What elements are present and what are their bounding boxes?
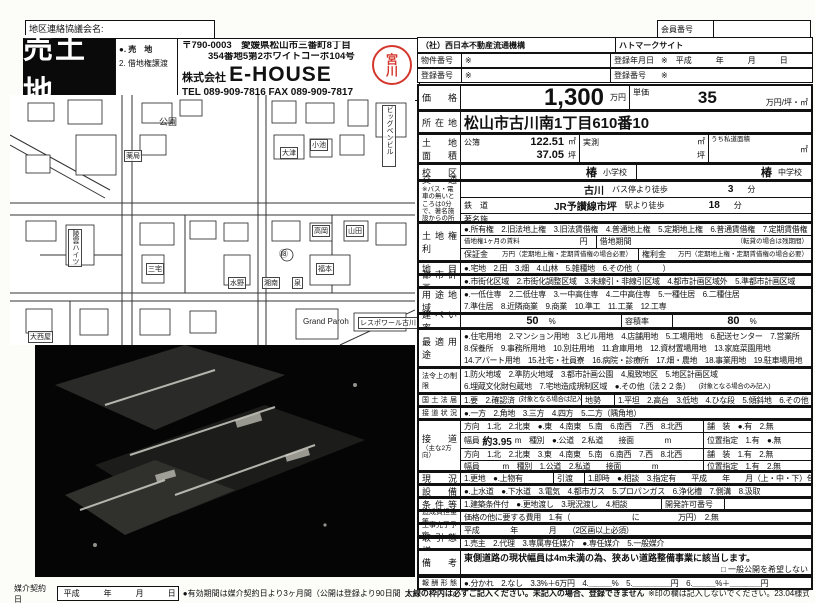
saiteki-lines: ●.住宅用地 2.マンション用地 3.ビル用地 4.店舗用地 5.工場用地 6.… [461, 330, 811, 366]
yoseki-value: 80 [727, 315, 739, 327]
footer-note-2: 太線の枠内は必ずご記入ください。未記入の場合、登録できません。 [405, 588, 644, 599]
map-label-onishiya: 大西屋 [28, 331, 53, 343]
location-map: 公園 薬局 大津 小池 高岡 山田 ビッグベンビル 三宅 福本 水野 湘南 泉 … [10, 95, 415, 345]
flyer-page: 地区連絡協議会名: 売土地 ●. 売 地 2. 借地権譲渡 〒790-0003 … [0, 0, 815, 603]
koji-value: 平成 年 月 （2区画以上必須） [461, 525, 811, 535]
kenpei-pct: % [549, 317, 556, 326]
area-jissoku-tsubo-unit: 坪 [697, 150, 705, 161]
bukken-row: 物件番号 ※ 登録年月日 ※ 平成 年 月 日 [417, 53, 813, 68]
transport-label: 交通 ※バス・電車の無いところは0分で、著名施設からの所要を記入 [419, 182, 461, 221]
org-left-title: （社）西日本不動産流通機構 [418, 38, 616, 52]
company-name-main: E-HOUSE [229, 63, 332, 86]
yoseki-cell: 80 % [672, 315, 811, 327]
map-label-koike: 小池 [310, 139, 328, 151]
chimoku-row: 地目 ●.宅地 2.田 3.畑 4.山林 5.雑種地 6.その他（ ） [417, 262, 813, 275]
genkyo-row: 現況 1.更地 ●.上物有 引渡 1.即時 ●.相談 3.指定有 平成 年 月（… [417, 472, 813, 485]
price-unit: 万円 [610, 92, 626, 103]
school-jhs-cell: 椿 中学校 [636, 165, 811, 179]
area-shidou-unit: ㎡ [709, 144, 811, 155]
yoto-options-1: ●.一低住専 2.二低住専 3.一中高住専 4.二中高住専 5.一種住居 6.二… [461, 289, 811, 301]
biko-lines: 東側道路の現状幅員は4m未満の為、狭あい道路整備事業に該当します。 □ 一般公開… [461, 551, 811, 574]
area-row: 土地面積 公簿 122.51㎡ 37.05坪 実測 ㎡ 坪 うち私道面積 ㎡ [417, 134, 813, 164]
org-title-row: （社）西日本不動産流通機構 ハトマークサイト [417, 37, 813, 53]
unit-price-unit: 万円/坪・㎡ [763, 96, 811, 109]
saiteki-options-3: 14.アパート用地 15.社宅・社員寮 16.病院・診療所 17.畑・農地 18… [461, 354, 811, 366]
torihiki-label: 取引態様 [419, 539, 461, 548]
bukken-value: ※ [462, 54, 610, 67]
map-label-fukumoto: 福本 [316, 263, 334, 275]
area-label: 土地面積 [419, 135, 461, 162]
touroku-date-label: 登録年月日 [610, 54, 658, 67]
kenpei-cell: 50 % [461, 315, 621, 327]
area-shidou-label: うち私道面積 [709, 135, 811, 144]
toshi-options: ●.市街化区域 2.市街化調整区域 3.未線引・非線引区域 4.都市計画区域外 … [461, 276, 811, 286]
yoseki-pct: % [750, 317, 757, 326]
photo-drawing [35, 345, 415, 577]
hikiwatashi-label: 引渡 [553, 473, 584, 483]
zosei-row: 造成負担金等 価格の他に要する費用 1.有（ に 万円） 2.無 [417, 511, 813, 524]
setsudo-r4-pos: 位置指定 1.有 2.無 [703, 461, 808, 472]
property-photo [35, 345, 415, 577]
chisei-label: 地勢 [581, 395, 614, 405]
biko-checkbox: □ 一般公開を希望しない [461, 564, 811, 575]
setsudo-jokyo-options: ●.一方 2.角地 3.三方 4.四方 5.二方（隅角地） [461, 408, 811, 418]
location-label: 所在地 [419, 112, 461, 132]
map-label-izumi: 泉 [292, 277, 303, 289]
kokudo-label: 国土法届 [419, 395, 461, 405]
land-rights-row: 土地権利 ●.所有権 2.旧法地上権 3.旧法賃借権 4.普通地上権 5.定期地… [417, 223, 813, 262]
org-right-title: ハトマークサイト [616, 38, 812, 52]
setsudo-label: 接 道 （主な2方向） [419, 421, 461, 470]
setsudo-r2-pos: 位置指定 1.有 ●.無 [703, 433, 808, 448]
company-name-prefix: 株式会社 [182, 72, 226, 84]
setsubi-options: ●.上水道 ●.下水道 3.電気 4.都市ガス 5.プロパンガス 6.浄化槽 7… [461, 486, 811, 496]
kenpei-value: 50 [526, 315, 538, 327]
bus-min-unit: 分 [747, 184, 755, 195]
biko-row: 備 考 東側道路の現状幅員は4m未満の為、狭あい道路整備事業に該当します。 □ … [417, 550, 813, 576]
footer-note-3: ※印の欄は記入しないでください。 [648, 588, 770, 599]
price-value-cell: 1,300 万円 [461, 86, 629, 109]
transport-row: 交通 ※バス・電車の無いところは0分で、著名施設からの所要を記入 古川 バス停よ… [417, 181, 813, 223]
area-koubo-m2: 122.51 [530, 136, 564, 148]
genkyo-options: 1.更地 ●.上物有 [461, 473, 553, 483]
kaihatsu-label: 開発許可番号 [661, 499, 724, 509]
school-jhs: 椿 [761, 164, 772, 180]
land-rights-label: 土地権利 [419, 224, 461, 260]
land-rights-deposit: 保証金 万円（定期地上権・定期賃借権の場合必要） 権利金 万円（定期地上権・定期… [461, 248, 811, 260]
setsudo-r2: 幅員 約3.95 m 種別 ●.公道 2.私道 接面 m 位置指定 1.有 ●.… [461, 432, 811, 448]
rail-minutes: 18 [709, 200, 720, 211]
bus-minutes: 3 [728, 184, 734, 195]
map-label-yamada: 山田 [346, 225, 364, 237]
map-label-mizuno: 水野 [228, 277, 246, 289]
rail-name: JR予讃線市坪 [554, 198, 617, 213]
kokudo-note: (対象となる場合は記入) [519, 396, 581, 403]
setsudo-r3-hoso: 舗 装 1.有 2.無 [703, 449, 808, 460]
zosei-options: 価格の他に要する費用 1.有（ に 万円） 2.無 [461, 512, 811, 522]
yoto-row: 用途地域 ●.一低住専 2.二低住専 3.一中高住専 4.二中高住専 5.一種住… [417, 288, 813, 314]
rail-label: 鉄 道 [464, 200, 494, 211]
property-register-card: 会員番号 （社）西日本不動産流通機構 ハトマークサイト 物件番号 ※ 登録年月日… [417, 20, 813, 592]
school-elem-cell: 椿 小学校 [461, 165, 636, 179]
unit-price-cell: 単価 35 万円/坪・㎡ [629, 86, 811, 109]
setsudo-r4: 幅員 m 種別 1.公道 2.私道 接面 m 位置指定 1.有 2.無 [461, 460, 811, 472]
map-label-otsu: 大津 [280, 147, 298, 159]
transport-lines: 古川 バス停より徒歩 3 分 鉄 道 JR予讃線市坪 駅より徒歩 18 分 著名… [461, 182, 811, 221]
genkyo-label: 現況 [419, 473, 461, 483]
map-label-shonan: 湘南 [262, 277, 280, 289]
touroku2-value: ※ [658, 69, 812, 82]
rent-label: 借地権1ヶ月の賃料 [464, 238, 520, 245]
setsudo-lines: 方向 1.北 2.北東 ●.東 4.南東 5.南 6.南西 7.西 8.北西 舗… [461, 421, 811, 470]
land-rights-lines: ●.所有権 2.旧法地上権 3.旧法賃借権 4.普通地上権 5.定期地上権 6.… [461, 224, 811, 260]
location-row: 所在地 松山市古川南1丁目610番10 [417, 111, 813, 134]
touroku-value: ※ [462, 69, 610, 82]
setsudo-r1-hoso: 舗 装 ●.有 2.無 [703, 421, 808, 432]
kokudo-row: 国土法届 1.要 2.確認済(対象となる場合は記入) 地勢 1.平坦 2.高台 … [417, 394, 813, 407]
deposit-label: 保証金 [464, 249, 488, 260]
biko-text: 東側道路の現状幅員は4m未満の為、狭あい道路整備事業に該当します。 [461, 551, 811, 564]
footer-note-1: ●有効期間は媒介契約日より3ヶ月間（公開は登録より90日間） [183, 588, 401, 599]
touroku-date-value: ※ 平成 年 月 日 [658, 54, 812, 67]
joken-row: 条件等 1.建築条件付 ●.更地渡し 3.現況渡し 4.相談 開発許可番号 [417, 498, 813, 511]
horei-row: 法令上の制限 1.防火地域 2.準防火地域 3.都市計画公園 4.風致地区 5.… [417, 368, 813, 394]
kenrikin-label: 権利金 [638, 249, 669, 260]
member-number-label: 会員番号 [658, 21, 714, 38]
hikiwatashi-options: 1.即時 ●.相談 3.指定有 平成 年 月（上・中・下）旬 [584, 473, 811, 483]
school-row: 校区 椿 小学校 椿 中学校 [417, 164, 813, 181]
touroku-row: 登録番号 ※ 登録番号 ※ [417, 68, 813, 83]
area-m2-unit: ㎡ [568, 136, 576, 147]
horei-options-1: 1.防火地域 2.準防火地域 3.都市計画公園 4.風致地区 5.地区計画区域 [461, 369, 811, 381]
bus-suffix: バス停より徒歩 [612, 184, 668, 195]
area-tsubo-unit: 坪 [568, 150, 576, 161]
map-label-bus18: ⑱ [278, 247, 289, 260]
area-koubo-tsubo: 37.05 [536, 149, 564, 161]
map-label-lespoir: レスポワール古川 [358, 317, 418, 329]
sale-type-banner: 売土地 [23, 38, 115, 95]
setsudo-row: 接 道 （主な2方向） 方向 1.北 2.北東 ●.東 4.南東 5.南 6.南… [417, 420, 813, 472]
transport-bus: 古川 バス停より徒歩 3 分 [461, 182, 811, 197]
lease-term-note: （転貸の場合は残期間） [737, 238, 809, 245]
school-elem-suffix: 小学校 [603, 167, 627, 178]
kenpei-label: 建ぺい率 [419, 315, 461, 327]
touroku-label: 登録番号 [418, 69, 462, 82]
joken-options: 1.建築条件付 ●.更地渡し 3.現況渡し 4.相談 [461, 499, 661, 509]
setsudo-width-value: 約3.95 [482, 433, 511, 448]
rail-min-unit: 分 [734, 200, 742, 211]
horei-options-2: 6.埋蔵文化財包蔵地 7.宅地造成規制区域 ●.その他（法２２条） (対象となる… [461, 381, 811, 393]
location-value: 松山市古川南1丁目610番10 [461, 112, 811, 132]
hanko-stamp: 宮川 [372, 45, 412, 85]
kenrikin-note: 万円（定期地上権・定期賃借権の場合必要） [678, 251, 808, 258]
map-label-pharmacy: 薬局 [124, 150, 142, 162]
setsudo-r3: 方向 1.北 2.北東 3.東 4.南東 5.南 6.南西 7.西 8.北西 舗… [461, 448, 811, 460]
kaihatsu-value [724, 499, 811, 509]
setsudo-jokyo-row: 接道状況 ●.一方 2.角地 3.三方 4.四方 5.二方（隅角地） [417, 407, 813, 420]
torihiki-options: 1.売主 2.代理 3.専属専任媒介 ●.専任媒介 5.一般媒介 [461, 539, 811, 548]
land-rights-rent: 借地権1ヶ月の賃料 円 借地期間 （転貸の場合は残期間） [461, 235, 811, 247]
area-jissoku-m2-unit: ㎡ [697, 136, 705, 147]
baikai-date-label: 媒介契約日 [14, 583, 53, 603]
unit-price-label: 単価 [630, 86, 652, 99]
price-value: 1,300 [544, 84, 604, 112]
bukken-label: 物件番号 [418, 54, 462, 67]
transport-rail: 鉄 道 JR予讃線市坪 駅より徒歩 18 分 [461, 197, 811, 213]
yoseki-label: 容積率 [621, 315, 672, 327]
biko-label: 備 考 [419, 551, 461, 574]
kenpei-row: 建ぺい率 50 % 容積率 80 % [417, 314, 813, 329]
horei-label: 法令上の制限 [419, 369, 461, 392]
area-jissoku-values: ㎡ 坪 [612, 135, 708, 162]
deposit-note: 万円（定期地上権・定期賃借権の場合必要） [502, 251, 632, 258]
chisei-options: 1.平坦 2.高台 3.低地 4.ひな段 5.傾斜地 6.その他 [614, 395, 811, 405]
school-elem: 椿 [586, 164, 597, 180]
map-label-miyake: 三宅 [146, 263, 164, 275]
sale-option-1: ●. 売 地 [119, 43, 181, 57]
setsubi-label: 設備 [419, 486, 461, 496]
lease-term-label: 借地期間 [596, 236, 635, 247]
area-koubo-label: 公簿 [461, 135, 487, 162]
baikai-date-box: 平成 年 月 日 [57, 586, 179, 601]
setsubi-row: 設備 ●.上水道 ●.下水道 3.電気 4.都市ガス 5.プロパンガス 6.浄化… [417, 485, 813, 498]
yoto-options-2: 7.準住居 8.近隣商業 9.商業 10.準工 11.工業 12.工専 [461, 301, 811, 313]
touroku2-label: 登録番号 [610, 69, 658, 82]
toshi-row: 都市計画 ●.市街化区域 2.市街化調整区域 3.未線引・非線引区域 4.都市計… [417, 275, 813, 288]
price-label: 価格 [419, 86, 461, 109]
land-rights-options: ●.所有権 2.旧法地上権 3.旧法賃借権 4.普通地上権 5.定期地上権 6.… [461, 224, 811, 235]
saiteki-label: 最適用途 [419, 330, 461, 366]
form-code: 23.04様式 [774, 588, 809, 599]
area-shidou-cell: うち私道面積 ㎡ [708, 135, 811, 162]
unit-price-value: 35 [698, 88, 717, 108]
footer-row: 媒介契約日 平成 年 月 日 ●有効期間は媒介契約日より3ヶ月間（公開は登録より… [14, 586, 809, 601]
setsudo-r1: 方向 1.北 2.北東 ●.東 4.南東 5.南 6.南西 7.西 8.北西 舗… [461, 421, 811, 432]
map-label-heights: 陵雲ハイツ [68, 229, 82, 267]
kokudo-options: 1.要 2.確認済(対象となる場合は記入) [461, 395, 581, 405]
saiteki-row: 最適用途 ●.住宅用地 2.マンション用地 3.ビル用地 4.店舗用地 5.工場… [417, 329, 813, 368]
map-label-park: 公園 [158, 115, 178, 128]
area-jissoku-label: 実測 [579, 135, 612, 162]
price-row: 価格 1,300 万円 単価 35 万円/坪・㎡ [417, 84, 813, 111]
map-label-bigben: ビッグベンビル [382, 105, 396, 167]
horei-note: (対象となる場合のみ記入) [699, 383, 771, 390]
bus-stop-name: 古川 [584, 182, 604, 197]
horei-lines: 1.防火地域 2.準防火地域 3.都市計画公園 4.風致地区 5.地区計画区域 … [461, 369, 811, 392]
setsudo-sublabel: （主な2方向） [422, 445, 457, 460]
rent-unit: 円 [580, 236, 588, 247]
koji-row: 工事完了予定 平成 年 月 （2区画以上必須） [417, 524, 813, 537]
area-koubo-values: 122.51㎡ 37.05坪 [487, 135, 579, 162]
sale-option-2: 2. 借地権譲渡 [119, 57, 181, 71]
yoto-lines: ●.一低住専 2.二低住専 3.一中高住専 4.二中高住専 5.一種住居 6.二… [461, 289, 811, 312]
torihiki-row: 取引態様 1.売主 2.代理 3.専属専任媒介 ●.専任媒介 5.一般媒介 [417, 537, 813, 550]
map-label-grand: Grand Paroh [302, 317, 350, 326]
saiteki-options-1: ●.住宅用地 2.マンション用地 3.ビル用地 4.店舗用地 5.工場用地 6.… [461, 330, 811, 342]
saiteki-options-2: 8.保養所 9.事務所用地 10.別荘用地 11.倉庫用地 12.資材置場用地 … [461, 342, 811, 354]
school-jhs-suffix: 中学校 [778, 167, 802, 178]
map-label-takaoka: 高岡 [312, 225, 330, 237]
toshi-label: 都市計画 [419, 276, 461, 286]
setsudo-jokyo-label: 接道状況 [419, 408, 461, 418]
map-drawing [10, 95, 415, 345]
chimoku-options: ●.宅地 2.田 3.畑 4.山林 5.雑種地 6.その他（ ） [461, 263, 811, 273]
rail-suffix: 駅より徒歩 [625, 200, 665, 211]
